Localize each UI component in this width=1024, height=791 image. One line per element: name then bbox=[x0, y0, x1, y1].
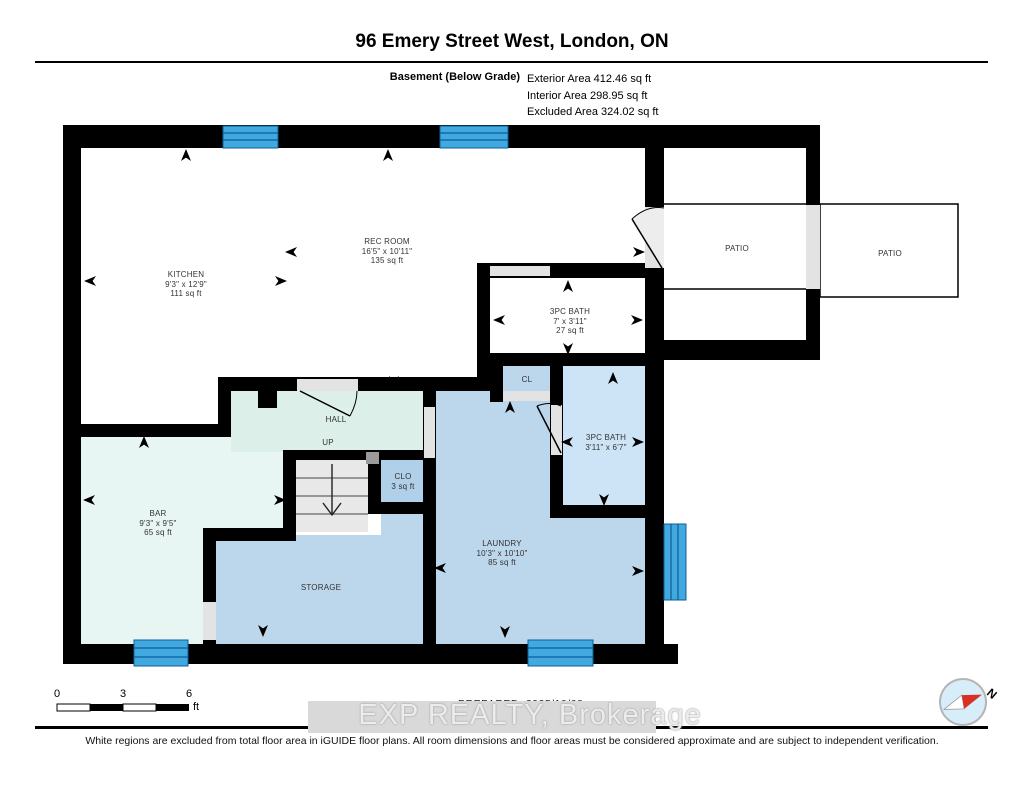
direction-arrow-icon bbox=[493, 315, 505, 325]
disclaimer-text: White regions are excluded from total fl… bbox=[0, 735, 1024, 747]
room-label-kitchen: KITCHEN 9'3" x 12'9" 111 sq ft bbox=[165, 270, 207, 299]
scale-tick-0: 0 bbox=[54, 688, 60, 700]
scale-tick-6: 6 bbox=[186, 688, 192, 700]
room-label-bath-right: 3PC BATH 3'11" x 6'7" bbox=[585, 433, 626, 452]
stairs-post bbox=[366, 452, 379, 464]
room-label-laundry: LAUNDRY 10'3" x 10'10" 85 sq ft bbox=[476, 539, 527, 568]
scale-unit: ft bbox=[193, 701, 199, 713]
direction-arrow-icon bbox=[181, 149, 191, 161]
scale-segment bbox=[90, 704, 123, 711]
room-label-patio-outer: PATIO bbox=[878, 249, 902, 259]
stairs-up-label: UP bbox=[322, 438, 334, 448]
room-label-bath-top: 3PC BATH 7' x 3'11" 27 sq ft bbox=[550, 307, 590, 336]
direction-arrow-icon bbox=[383, 149, 393, 161]
stairs bbox=[296, 452, 379, 532]
room-label-hall: HALL bbox=[326, 415, 347, 425]
room-label-bar: BAR 9'3" x 9'5" 65 sq ft bbox=[139, 509, 176, 538]
direction-arrow-icon bbox=[275, 276, 287, 286]
window-top-left bbox=[223, 126, 278, 148]
compass-icon: N bbox=[936, 675, 999, 728]
direction-arrow-icon bbox=[84, 276, 96, 286]
scale-tick-3: 3 bbox=[120, 688, 126, 700]
floor-plan: N bbox=[0, 0, 1024, 791]
scale-segment bbox=[123, 704, 156, 711]
room-label-storage: STORAGE bbox=[301, 583, 341, 593]
scale-segment bbox=[57, 704, 90, 711]
direction-arrow-icon bbox=[563, 280, 573, 292]
room-label-clo: CLO 3 sq ft bbox=[391, 472, 414, 491]
window-top-right bbox=[440, 126, 508, 148]
window-right-side bbox=[664, 524, 686, 600]
floorplan-page: 96 Emery Street West, London, ON Basemen… bbox=[0, 0, 1024, 791]
window-bottom-left bbox=[134, 640, 188, 666]
direction-arrow-icon bbox=[633, 247, 645, 257]
window-bottom-right bbox=[528, 640, 593, 666]
direction-arrow-icon bbox=[285, 247, 297, 257]
watermark: EXP REALTY, Brokerage bbox=[300, 699, 760, 732]
room-label-patio-inner: PATIO bbox=[725, 244, 749, 254]
scale-segment bbox=[156, 704, 189, 711]
direction-arrow-icon bbox=[631, 315, 643, 325]
room-label-rec-room: REC ROOM 16'5" x 10'11" 135 sq ft bbox=[362, 237, 413, 266]
room-label-cl: CL bbox=[522, 375, 533, 385]
scale-bar bbox=[57, 704, 189, 711]
